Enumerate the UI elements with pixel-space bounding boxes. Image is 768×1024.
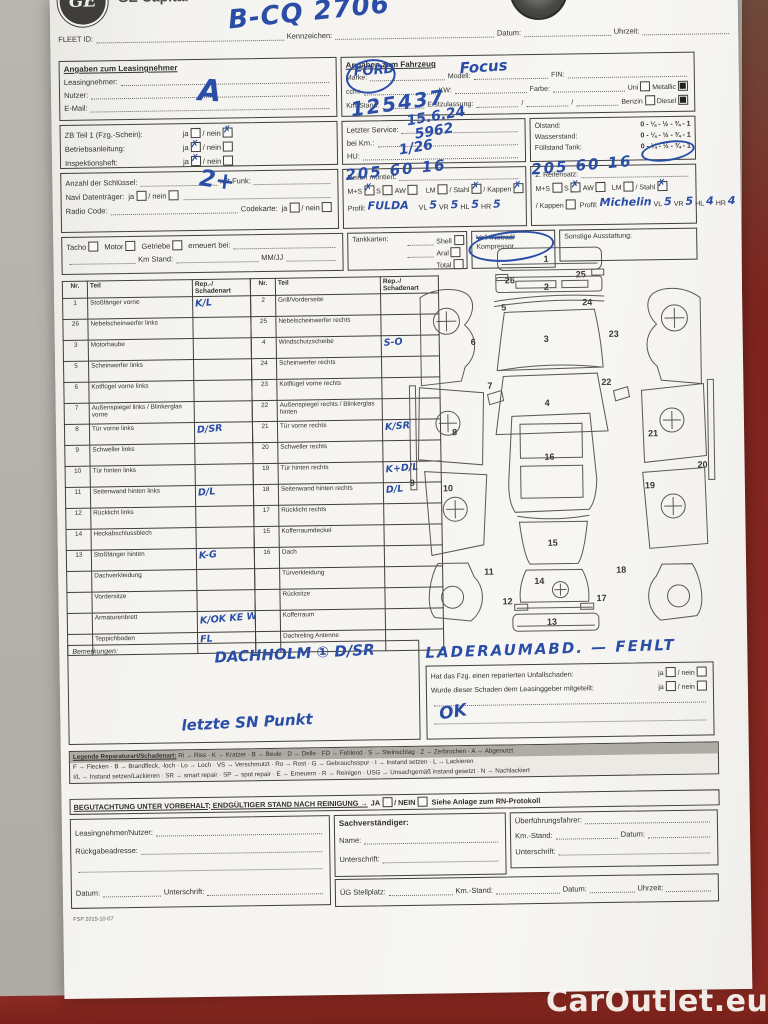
fleet-id-field[interactable] xyxy=(96,33,284,44)
part-name: Rücklicht links xyxy=(91,507,196,530)
getriebe-checkbox[interactable] xyxy=(172,240,182,250)
damage-row: 26 Nebelscheinwerfer links xyxy=(63,317,251,341)
betriebsanleitung-nein-checkbox[interactable] xyxy=(223,141,233,151)
svg-text:15: 15 xyxy=(548,538,558,548)
part-name: Rücklicht rechts xyxy=(279,504,384,527)
diesel-checkbox[interactable]: ■ xyxy=(678,95,688,105)
tires-mounted-box: Reifen montiert: M+S✗ S AW LM / Stahl✗ /… xyxy=(342,166,527,229)
anzahl-schluessel-label: Anzahl der Schlüssel: xyxy=(65,178,137,188)
damage-code-cell[interactable] xyxy=(196,506,254,528)
oelstand-label: Ölstand: xyxy=(535,123,561,130)
part-number: 8 xyxy=(64,424,89,445)
damage-row: Vordersitze xyxy=(67,590,255,614)
part-number xyxy=(255,568,280,589)
assessment-nein-checkbox[interactable] xyxy=(417,797,427,807)
uhrzeit-field[interactable] xyxy=(642,26,729,35)
unfallschaden-nein-checkbox[interactable] xyxy=(697,666,707,676)
navi-ja-checkbox[interactable] xyxy=(136,191,146,201)
svg-text:24: 24 xyxy=(582,297,592,307)
diesel-label: Diesel xyxy=(657,98,677,105)
part-name: Stoßfänger vorne xyxy=(88,297,193,320)
fleet-row: FLEET ID: Kennzeichen: Datum: Uhrzeit: xyxy=(58,25,732,44)
farbe-field[interactable] xyxy=(553,84,625,93)
sachverstaendiger-title: Sachverständiger: xyxy=(339,817,501,828)
legend-box: Legende Reparaturart/Schadenart: Ri → Ri… xyxy=(69,741,719,784)
tank-level-circle-mark xyxy=(640,137,696,165)
unfallschaden-ja-checkbox[interactable] xyxy=(665,667,675,677)
damage-code-cell[interactable] xyxy=(193,359,251,381)
mmjj-label: MM/JJ xyxy=(261,253,283,262)
handwritten-remark-2: letzte SN Punkt xyxy=(181,710,313,735)
navi-nein-checkbox[interactable] xyxy=(168,190,178,200)
farbe-label: Farbe: xyxy=(530,86,550,93)
damage-code-cell[interactable]: K-G xyxy=(196,548,254,570)
damage-code-cell[interactable] xyxy=(194,401,252,423)
part-name: Heckabschlussblech xyxy=(91,528,196,551)
damage-row: 9 Schweller links xyxy=(65,443,253,467)
part-name: Dachverkleidung xyxy=(92,570,197,593)
tires2-stahl-checkbox[interactable]: ✗ xyxy=(657,181,667,191)
svg-text:23: 23 xyxy=(609,329,619,339)
svg-text:5: 5 xyxy=(501,302,506,312)
stellplatz-label: ÜG Stellplatz: xyxy=(340,887,386,897)
kennzeichen-field[interactable] xyxy=(335,30,494,40)
leasingnehmer-field[interactable] xyxy=(121,75,329,86)
accident-notes-field[interactable] xyxy=(434,694,706,706)
leasingnehmer-label: Leasingnehmer: xyxy=(64,77,118,87)
part-name: Außenspiegel rechts / Blinkerglas hinten xyxy=(277,399,382,422)
shell-checkbox[interactable] xyxy=(454,235,464,245)
damage-row: 13 Stoßfänger hinten K-G xyxy=(66,548,254,572)
part-name: Schweller rechts xyxy=(278,441,383,464)
damage-row: 7 Außenspiegel links / Blinkerglas vorne xyxy=(64,401,252,425)
svg-text:21: 21 xyxy=(648,428,658,438)
part-number: 3 xyxy=(63,340,88,361)
damage-code-cell[interactable] xyxy=(194,380,252,402)
tires1-ms-checkbox[interactable]: ✗ xyxy=(364,185,374,195)
tacho-box: Tacho Motor Getriebe erneuert bei: Km St… xyxy=(61,233,344,275)
svg-text:13: 13 xyxy=(547,617,557,627)
damage-code-cell[interactable]: K/OK KE Wass xyxy=(197,611,255,633)
tires2-ms-checkbox[interactable] xyxy=(552,183,562,193)
inspektionsheft-nein-checkbox[interactable] xyxy=(223,155,233,165)
handwritten-nutzer: A xyxy=(197,73,222,109)
lessee-box: Angaben zum Leasingnehmer Leasingnehmer:… xyxy=(59,57,338,121)
part-name: Armaturenbrett xyxy=(92,612,197,635)
codekarte-nein-checkbox[interactable] xyxy=(322,202,332,212)
metallic-checkbox[interactable]: ■ xyxy=(678,81,688,91)
part-name: Kofferraum xyxy=(280,609,385,632)
oelstand-scale[interactable]: 0 - ¼ - ½ - ¾ - 1 xyxy=(640,121,690,129)
sig-lessee-label: Leasingnehmer/Nutzer: xyxy=(75,828,153,838)
round-stamp-icon xyxy=(509,0,568,20)
driver-km-field[interactable] xyxy=(556,831,618,840)
svg-text:14: 14 xyxy=(534,576,544,586)
tires1-profil-label: Profil: xyxy=(348,205,366,212)
part-number xyxy=(255,589,280,610)
handwritten-tires1-profil: FULDA xyxy=(368,199,409,213)
tires1-lm-checkbox[interactable] xyxy=(437,184,447,194)
part-number xyxy=(67,571,92,592)
metallic-label: Metallic xyxy=(652,84,676,91)
part-number: 11 xyxy=(65,487,90,508)
sig-unterschrift-label: Unterschrift: xyxy=(164,887,205,897)
bei-km-label: bei Km.: xyxy=(347,138,375,147)
damage-row: 5 Scheinwerfer links xyxy=(63,359,251,383)
wasserstand-label: Wasserstand: xyxy=(535,133,578,141)
driver-field[interactable] xyxy=(585,814,710,824)
part-number: 26 xyxy=(63,319,88,340)
handwritten-cargo-cover-note: LADERAUMABD. — FEHLT xyxy=(425,636,676,662)
part-number xyxy=(67,592,92,613)
fin-field[interactable] xyxy=(567,69,687,79)
unfallschaden-question: Hat das Fzg. einen reparierten Unfallsch… xyxy=(431,671,574,680)
part-number xyxy=(67,613,92,634)
tacho-km-field[interactable] xyxy=(176,254,258,263)
handwritten-remark-1: DACHHOLM ① D/SR xyxy=(214,641,375,667)
part-number: 20 xyxy=(253,442,278,463)
stellplatz-field[interactable] xyxy=(389,887,453,896)
email-label: E-Mail: xyxy=(64,104,87,113)
getriebe-label: Getriebe xyxy=(141,241,170,250)
tires2-profil-label: Profil: xyxy=(580,202,598,209)
form-paper: GE GE Capital FLEET ID: Kennzeichen: Dat… xyxy=(50,0,753,999)
damage-row: 8 Tür vorne links D/SR xyxy=(64,422,252,446)
datum-field[interactable] xyxy=(524,28,611,37)
svg-text:2: 2 xyxy=(544,282,549,292)
mit-funk-field[interactable] xyxy=(254,176,331,185)
damage-row: 12 Rücklicht links xyxy=(66,506,254,530)
tacho-label: Tacho xyxy=(66,243,86,252)
sonstige-ausstattung-label: Sonstige Ausstattung: xyxy=(564,232,692,241)
svg-text:3: 3 xyxy=(544,334,549,344)
part-number: 21 xyxy=(252,421,277,442)
expert-signature-field[interactable] xyxy=(383,854,499,864)
part-number: 4 xyxy=(251,337,276,358)
part-name: Schweller links xyxy=(90,444,195,467)
mitgeteilt-question: Wurde dieser Schaden dem Leasinggeber mi… xyxy=(431,685,594,694)
damage-code-cell[interactable] xyxy=(197,569,255,591)
documents-box: ZB Teil 1 (Fzg.-Schein): ja / nein ✗ Bet… xyxy=(59,121,338,169)
tires2-aw-checkbox[interactable] xyxy=(596,182,606,192)
car-diagram: 1 2625 2 524 3 6 23 4 7 22 9 20 8 21 xyxy=(405,241,721,638)
assessment-ja-checkbox[interactable] xyxy=(382,797,392,807)
svg-text:7: 7 xyxy=(487,381,492,391)
zb-teil1-ja-checkbox[interactable] xyxy=(190,128,200,138)
sig-datum-label: Datum: xyxy=(76,889,100,898)
tankkarten-label: Tankkarten: xyxy=(352,236,388,244)
watermark: CarOutlet.eu xyxy=(546,984,768,1019)
damage-row: Dachverkleidung xyxy=(67,569,255,593)
part-name: Seitenwand hinten links xyxy=(90,486,195,509)
svg-text:8: 8 xyxy=(452,427,457,437)
part-name: Tür hinten rechts xyxy=(278,462,383,485)
navi-label: Navi Datenträger: xyxy=(65,192,124,202)
part-number: 19 xyxy=(253,463,278,484)
handwritten-tires2-profil: Michelin xyxy=(600,195,652,209)
datum-label: Datum: xyxy=(497,28,521,37)
vehicle-title: Angaben zum Fahrzeug xyxy=(346,56,690,70)
tires1-aw-checkbox[interactable] xyxy=(408,185,418,195)
part-name: Seitenwand hinten rechts xyxy=(278,483,383,506)
uni-label: Uni xyxy=(628,84,639,91)
tires1-stahl-checkbox[interactable]: ✗ xyxy=(471,184,481,194)
mitgeteilt-ja-checkbox[interactable] xyxy=(666,681,676,691)
stellplatz-datum-field[interactable] xyxy=(590,885,635,894)
zb-teil1-label: ZB Teil 1 (Fzg.-Schein): xyxy=(65,129,183,140)
damage-code-cell[interactable] xyxy=(195,443,253,465)
expert-name-field[interactable] xyxy=(364,835,498,845)
motor-label: Motor xyxy=(104,242,123,251)
sig-address-field-2[interactable] xyxy=(78,861,322,873)
part-number: 2 xyxy=(251,295,276,316)
part-number: 24 xyxy=(251,358,276,379)
part-number xyxy=(255,610,280,631)
svg-text:16: 16 xyxy=(544,452,554,462)
svg-text:1: 1 xyxy=(543,254,548,264)
damage-code-cell[interactable] xyxy=(197,590,255,612)
benzin-label: Benzin xyxy=(621,98,643,105)
stellplatz-km-field[interactable] xyxy=(496,886,560,895)
driver-signature-field[interactable] xyxy=(559,845,711,855)
handwritten-funk-count: 2+ xyxy=(198,165,237,196)
kw-field[interactable] xyxy=(455,85,527,94)
part-name: Motorhaube xyxy=(88,339,193,362)
part-name: Scheinwerfer rechts xyxy=(276,357,381,380)
part-number: 9 xyxy=(65,445,90,466)
part-name: Stoßfänger hinten xyxy=(91,549,196,572)
form-code: FSP 2015-10-07 xyxy=(73,916,113,923)
brand-text: GE Capital xyxy=(117,0,188,5)
assessment-suffix: Siehe Anlage zum RN-Protokoll xyxy=(431,795,540,806)
part-number: 17 xyxy=(254,505,279,526)
mmjj-field[interactable] xyxy=(286,253,335,262)
radio-code-field[interactable] xyxy=(110,205,238,215)
driver-datum-field[interactable] xyxy=(648,829,710,838)
svg-text:9: 9 xyxy=(410,478,415,488)
svg-text:18: 18 xyxy=(616,565,626,575)
sig-address-field[interactable] xyxy=(141,844,323,855)
tires2-kappen-checkbox[interactable] xyxy=(566,199,576,209)
accident-box: Hat das Fzg. einen reparierten Unfallsch… xyxy=(426,661,715,739)
damage-code-cell[interactable]: D/SR xyxy=(194,422,252,444)
svg-text:6: 6 xyxy=(471,337,476,347)
remarks-box: Bemerkungen: DACHHOLM ① D/SR letzte SN P… xyxy=(67,640,420,745)
part-number: 6 xyxy=(64,382,89,403)
mitgeteilt-nein-checkbox[interactable] xyxy=(697,680,707,690)
betriebsanleitung-ja-checkbox[interactable]: ✗ xyxy=(191,142,201,152)
nutzer-label: Nutzer: xyxy=(64,91,88,100)
sig-address-label: Rückgabeadresse: xyxy=(75,846,138,856)
vehicle-box: Angaben zum Fahrzeug Marke: Modell: FIN:… xyxy=(341,52,696,117)
part-number: 18 xyxy=(253,484,278,505)
assessment-text: BEGUTACHTUNG UNTER VORBEHALT; ENDGÜLTIGE… xyxy=(74,798,368,811)
tacho-checkbox[interactable] xyxy=(88,241,98,251)
erneuert-bei-field[interactable] xyxy=(233,240,335,250)
tires1-kappen-checkbox[interactable]: ✗ xyxy=(513,183,523,193)
accident-notes-field-2[interactable] xyxy=(434,712,706,724)
part-name: Nebelscheinwerfer links xyxy=(88,318,193,341)
damage-row: 10 Tür hinten links xyxy=(65,464,253,488)
svg-text:22: 22 xyxy=(601,377,611,387)
hu-label: HU: xyxy=(347,152,360,161)
tacho-km-label: Km Stand: xyxy=(138,254,173,264)
zb-teil1-nein-checkbox[interactable]: ✗ xyxy=(223,127,233,137)
driver-label: Überführungsfahrer: xyxy=(515,815,582,825)
keys-box: Anzahl der Schlüssel: mit Funk: Navi Dat… xyxy=(60,169,339,233)
part-name: Kotflügel vorne links xyxy=(89,381,194,404)
part-name: Kotflügel vorne rechts xyxy=(277,378,382,401)
part-number: 16 xyxy=(254,547,279,568)
codekarte-label: Codekarte: xyxy=(241,204,278,214)
codekarte-ja-checkbox[interactable] xyxy=(289,202,299,212)
part-number: 13 xyxy=(66,550,91,571)
part-name: Grill/Vorderseite xyxy=(276,294,381,317)
svg-text:10: 10 xyxy=(443,483,453,493)
tank-label: Füllstand Tank: xyxy=(535,144,582,152)
damage-code-cell[interactable]: D/L xyxy=(195,485,253,507)
damage-row: 3 Motorhaube xyxy=(63,338,251,362)
expert-signature-box: Sachverständiger: Name: Unterschrift: xyxy=(334,812,507,877)
damage-code-cell[interactable] xyxy=(193,317,251,339)
lessee-title: Angaben zum Leasingnehmer xyxy=(64,61,332,74)
stellplatz-box: ÜG Stellplatz: Km.-Stand: Datum: Uhrzeit… xyxy=(335,873,719,907)
part-name: Kofferraumdeckel xyxy=(279,525,384,548)
svg-text:25: 25 xyxy=(576,269,586,279)
uhrzeit-label: Uhrzeit: xyxy=(614,26,640,35)
part-number: 15 xyxy=(254,526,279,547)
svg-text:11: 11 xyxy=(484,567,494,577)
part-number: 5 xyxy=(63,361,88,382)
betriebsanleitung-label: Betriebsanleitung: xyxy=(65,143,183,154)
part-name: Tür vorne links xyxy=(89,423,194,446)
benzin-checkbox[interactable] xyxy=(645,95,655,105)
svg-text:17: 17 xyxy=(596,593,606,603)
stellplatz-uhrzeit-field[interactable] xyxy=(666,883,711,892)
uni-checkbox[interactable] xyxy=(640,81,650,91)
part-name: Vordersitze xyxy=(92,591,197,614)
part-name: Tür hinten links xyxy=(90,465,195,488)
fin-label: FIN: xyxy=(551,72,564,79)
part-number: 25 xyxy=(251,316,276,337)
part-name: Tür vorne rechts xyxy=(277,420,382,443)
sig-unterschrift-field[interactable] xyxy=(207,886,323,896)
part-number: 23 xyxy=(252,379,277,400)
part-name: Scheinwerfer links xyxy=(88,360,193,383)
handwritten-modell: Focus xyxy=(459,56,508,77)
svg-text:12: 12 xyxy=(503,596,513,606)
driver-signature-box: Überführungsfahrer: Km.-Stand: Datum: Un… xyxy=(510,809,719,868)
damage-row: 11 Seitenwand hinten links D/L xyxy=(65,485,253,509)
ge-logo-icon: GE xyxy=(59,0,106,25)
part-number: 22 xyxy=(252,400,277,421)
part-name: Nebelscheinwerfer rechts xyxy=(276,315,381,338)
damage-row: 14 Heckabschlussblech xyxy=(66,527,254,551)
part-name: Außenspiegel links / Blinkerglas vorne xyxy=(89,402,194,425)
part-number: 14 xyxy=(66,529,91,550)
tires2-s-checkbox[interactable]: ✗ xyxy=(571,182,581,192)
radio-code-label: Radio Code: xyxy=(66,206,108,216)
second-tire-set-box: 2. Reifensatz: M+S S✗ AW LM / Stahl✗ / K… xyxy=(530,164,697,226)
handwritten-ok: OK xyxy=(438,700,468,724)
part-number: 7 xyxy=(64,403,89,424)
inspektionsheft-ja-checkbox[interactable]: ✗ xyxy=(191,156,201,166)
expert-name-label: Name: xyxy=(339,836,361,845)
erstzulassung-field[interactable] xyxy=(476,99,518,108)
damage-code-cell[interactable] xyxy=(196,527,254,549)
stellplatz-uhrzeit-label: Uhrzeit: xyxy=(637,883,663,892)
part-number: 12 xyxy=(66,508,91,529)
kennzeichen-label: Kennzeichen: xyxy=(287,31,333,41)
damage-row: 1 Stoßfänger vorne K/L xyxy=(63,296,251,320)
damage-table-left: Nr. Teil Rep.-/ Schadenart 1 Stoßfänger … xyxy=(62,278,257,656)
letzter-service-label: Letzter Service: xyxy=(347,125,399,135)
svg-text:4: 4 xyxy=(545,398,550,408)
part-number: 10 xyxy=(65,466,90,487)
part-number: 1 xyxy=(63,298,88,319)
damage-code-cell[interactable] xyxy=(193,338,251,360)
tires2-lm-checkbox[interactable] xyxy=(623,182,633,192)
part-name: Windschutzscheibe xyxy=(276,336,381,359)
damage-table: Nr. Teil Rep.-/ Schadenart 1 Stoßfänger … xyxy=(62,275,445,656)
lessee-signature-box: Leasingnehmer/Nutzer: Rückgabeadresse: D… xyxy=(70,815,331,909)
fleet-id-label: FLEET ID: xyxy=(58,35,93,45)
driver-km-label: Km.-Stand: xyxy=(515,831,553,841)
wasserstand-scale[interactable]: 0 - ¼ - ½ - ¾ - 1 xyxy=(640,132,690,140)
svg-text:19: 19 xyxy=(645,480,655,490)
tires1-s-checkbox[interactable] xyxy=(383,185,393,195)
damage-code-cell[interactable]: K/L xyxy=(193,296,251,318)
erneuert-bei-label: erneuert bei: xyxy=(188,241,230,251)
part-name: Türverkleidung xyxy=(280,567,385,590)
motor-checkbox[interactable] xyxy=(125,241,135,251)
part-name: Dach xyxy=(279,546,384,569)
damage-row: 6 Kotflügel vorne links xyxy=(64,380,252,404)
inspektionsheft-label: Inspektionsheft: xyxy=(65,157,183,168)
sig-datum-field[interactable] xyxy=(103,889,161,898)
part-name: Rücksitze xyxy=(280,588,385,611)
damage-row: Armaturenbrett K/OK KE Wass xyxy=(67,611,255,635)
photo-background: GE GE Capital FLEET ID: Kennzeichen: Dat… xyxy=(0,0,768,1024)
sig-lessee-field[interactable] xyxy=(156,826,322,836)
damage-code-cell[interactable] xyxy=(195,464,253,486)
